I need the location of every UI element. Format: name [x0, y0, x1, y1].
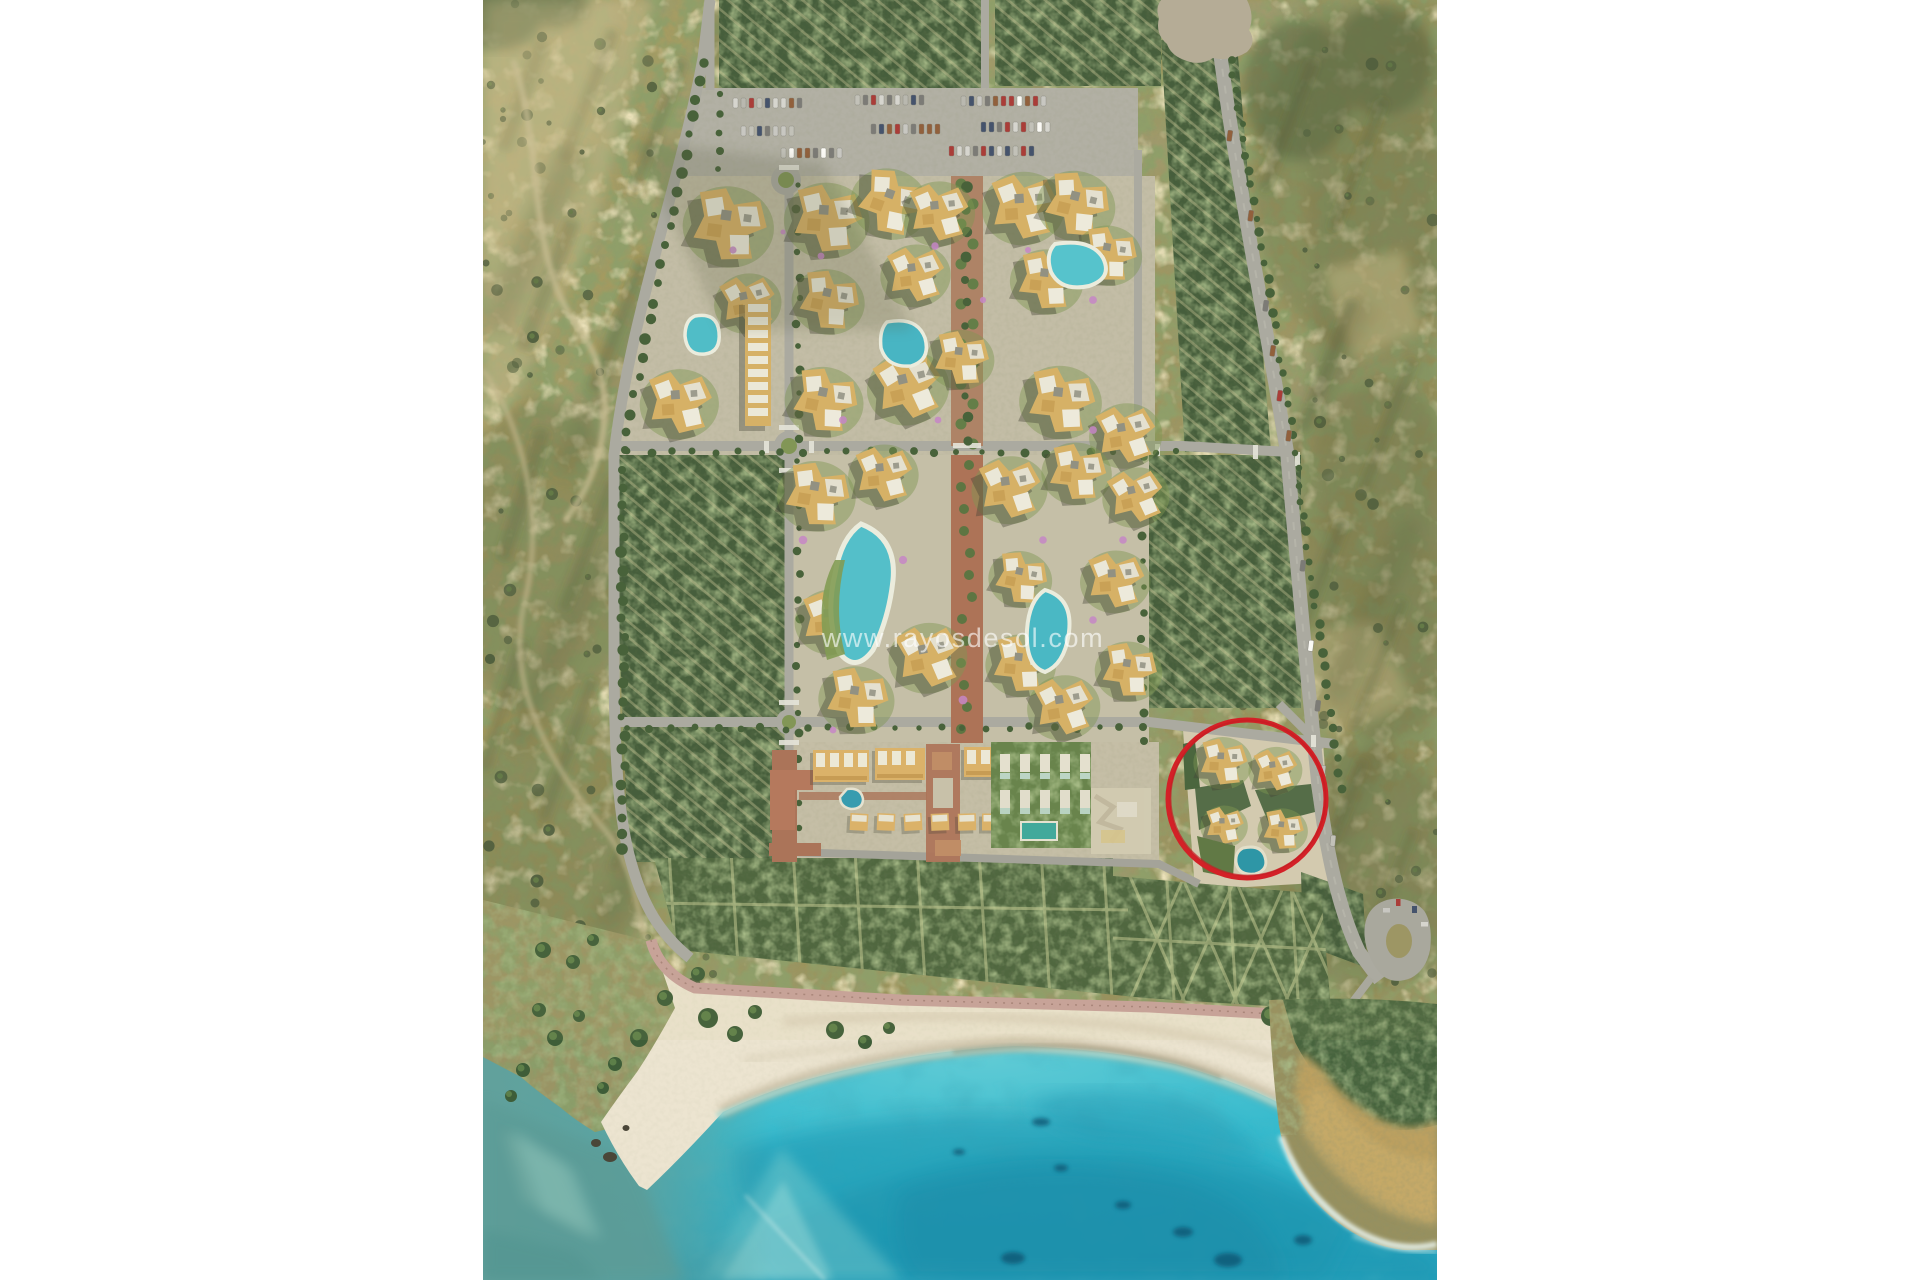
svg-text:www.rayosdesol.com: www.rayosdesol.com [821, 623, 1104, 653]
